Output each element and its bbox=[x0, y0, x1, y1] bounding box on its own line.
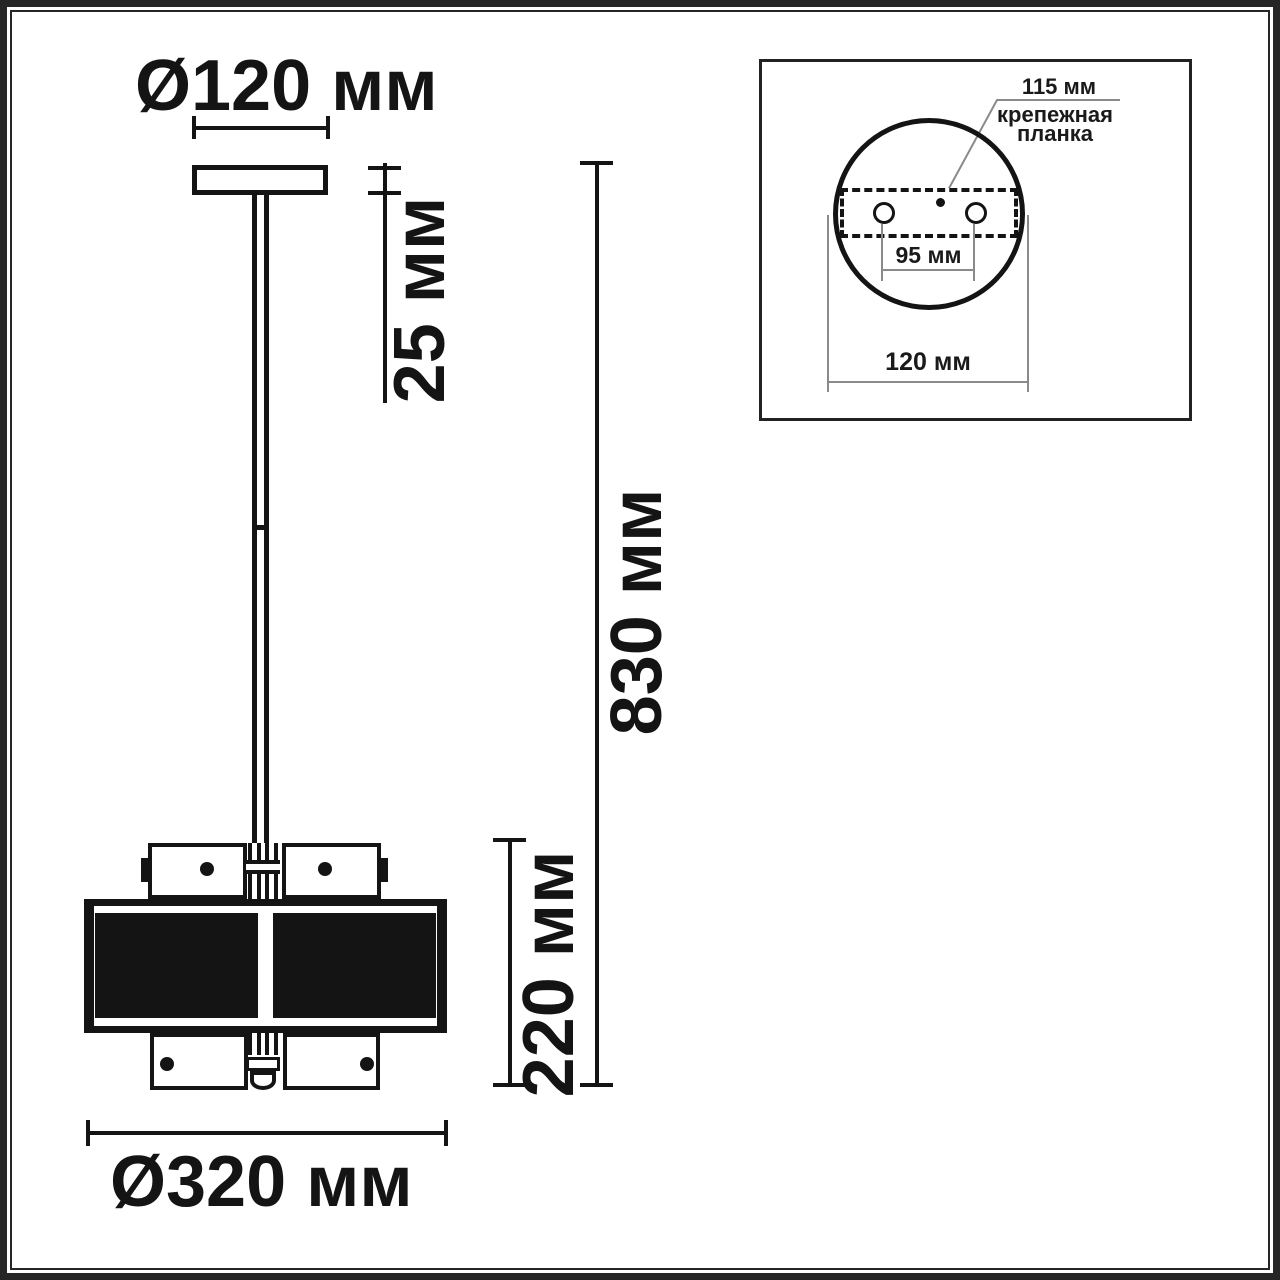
shade-diameter-label: Ø320 мм bbox=[110, 1146, 413, 1218]
hole-spacing-dim-line bbox=[882, 269, 975, 271]
top-plate-left bbox=[148, 843, 247, 899]
shade-height-label: 220 мм bbox=[513, 844, 585, 1104]
strap-hole-right bbox=[965, 202, 987, 224]
top-coupling bbox=[248, 843, 278, 899]
shade-diameter-tick-right bbox=[444, 1120, 448, 1146]
shade-top-rim bbox=[84, 899, 447, 906]
suspension-rod bbox=[252, 195, 269, 843]
top-plate-right-screw bbox=[318, 862, 332, 876]
total-height-label: 830 мм bbox=[601, 472, 673, 752]
inset-diameter-label: 120 мм bbox=[828, 348, 1028, 377]
total-height-tick-top bbox=[580, 161, 613, 165]
top-plate-right-tab bbox=[380, 858, 388, 882]
canopy-diameter-label: Ø120 мм bbox=[135, 50, 438, 122]
canopy-diameter-dim-line bbox=[192, 126, 330, 130]
shade-bottom-rim bbox=[84, 1026, 447, 1033]
bottom-plate-left-screw bbox=[160, 1057, 174, 1071]
canopy-diameter-tick-right bbox=[326, 116, 330, 139]
strap-hole-left bbox=[873, 202, 895, 224]
canopy-outline bbox=[192, 165, 328, 195]
strap-caption-line2: планка bbox=[985, 124, 1125, 144]
canopy-diameter-tick-left bbox=[192, 116, 196, 139]
shade-diameter-dim-line bbox=[88, 1131, 448, 1135]
shade-height-tick-top bbox=[493, 838, 526, 842]
strap-length-label: 115 мм bbox=[997, 74, 1121, 100]
shade-left-edge bbox=[84, 899, 94, 1033]
inset-diameter-dim-line bbox=[828, 381, 1028, 383]
canopy-height-tick-bottom bbox=[368, 191, 401, 195]
canopy-height-tick-top bbox=[368, 166, 401, 170]
canopy-height-label: 25 мм bbox=[384, 200, 456, 400]
top-plate-left-screw bbox=[200, 862, 214, 876]
shade-fabric-left bbox=[95, 913, 258, 1018]
shade-fabric-right bbox=[273, 913, 436, 1018]
shade-diameter-tick-left bbox=[86, 1120, 90, 1146]
shade-right-edge bbox=[437, 899, 447, 1033]
rod-joint bbox=[252, 525, 269, 530]
top-plate-left-tab bbox=[141, 858, 149, 882]
mounting-strap-dashed bbox=[840, 188, 1018, 238]
bottom-coupling bbox=[248, 1033, 278, 1090]
strap-center-dot bbox=[936, 198, 945, 207]
hole-spacing-label: 95 мм bbox=[882, 242, 975, 269]
bottom-plate-right-screw bbox=[360, 1057, 374, 1071]
